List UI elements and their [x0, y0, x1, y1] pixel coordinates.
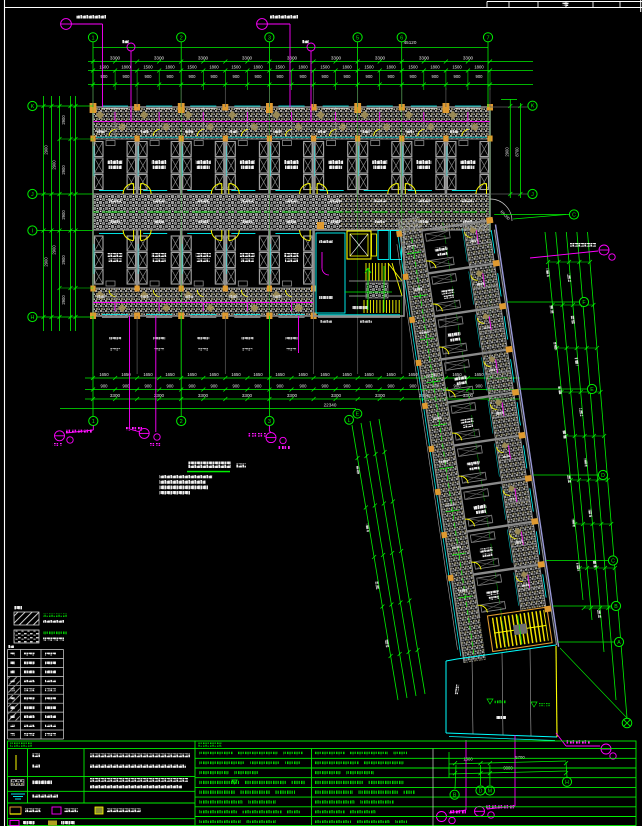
- svg-text:1500: 1500: [187, 65, 197, 70]
- svg-text:900: 900: [145, 74, 153, 79]
- svg-text:C: C: [572, 213, 576, 219]
- svg-text:1650: 1650: [320, 372, 330, 377]
- svg-text:8700: 8700: [515, 147, 520, 157]
- svg-text:2900: 2900: [61, 255, 66, 265]
- svg-text:900: 900: [277, 74, 285, 79]
- svg-text:1800: 1800: [298, 65, 308, 70]
- svg-text:1650: 1650: [298, 372, 308, 377]
- svg-text:900: 900: [410, 384, 418, 389]
- svg-text:900: 900: [366, 384, 374, 389]
- svg-text:2: 2: [180, 35, 183, 41]
- svg-text:D: D: [601, 473, 605, 479]
- svg-text:900: 900: [476, 384, 484, 389]
- svg-text:1800: 1800: [430, 65, 440, 70]
- svg-text:900: 900: [101, 384, 109, 389]
- svg-text:1800: 1800: [474, 65, 484, 70]
- svg-text:3300: 3300: [242, 393, 253, 398]
- svg-text:2900: 2900: [52, 160, 57, 170]
- svg-text:900: 900: [167, 74, 175, 79]
- svg-text:1650: 1650: [165, 372, 175, 377]
- svg-text:900: 900: [300, 74, 308, 79]
- svg-text:900: 900: [145, 384, 153, 389]
- svg-text:1500: 1500: [463, 757, 473, 762]
- svg-text:5: 5: [356, 35, 359, 41]
- svg-text:1500: 1500: [231, 65, 241, 70]
- svg-text:900: 900: [255, 384, 263, 389]
- svg-text:900: 900: [410, 74, 418, 79]
- svg-text:1650: 1650: [143, 372, 153, 377]
- svg-text:1650: 1650: [231, 372, 241, 377]
- svg-text:K: K: [531, 104, 535, 110]
- svg-text:900: 900: [322, 74, 330, 79]
- svg-text:1650: 1650: [99, 372, 109, 377]
- svg-text:H: H: [565, 780, 569, 786]
- svg-text:3300: 3300: [198, 393, 209, 398]
- svg-text:I: I: [32, 229, 34, 235]
- svg-text:900: 900: [123, 384, 131, 389]
- svg-text:5700: 5700: [515, 755, 525, 760]
- svg-text:H: H: [30, 315, 34, 321]
- svg-text:2900: 2900: [52, 245, 57, 255]
- svg-text:3300: 3300: [375, 56, 386, 61]
- svg-text:A: A: [617, 640, 621, 646]
- svg-text:900: 900: [211, 74, 219, 79]
- svg-text:D: D: [479, 789, 483, 795]
- svg-text:B: B: [614, 604, 618, 610]
- svg-text:1650: 1650: [474, 372, 484, 377]
- svg-text:900: 900: [322, 384, 330, 389]
- svg-text:F: F: [582, 300, 585, 306]
- svg-text:1650: 1650: [386, 372, 396, 377]
- svg-text:3300: 3300: [331, 393, 342, 398]
- svg-text:900: 900: [189, 74, 197, 79]
- svg-text:1: 1: [92, 419, 95, 425]
- svg-text:7: 7: [486, 35, 489, 41]
- svg-text:1800: 1800: [209, 65, 219, 70]
- svg-text:E: E: [590, 387, 594, 393]
- svg-text:M: M: [488, 789, 492, 795]
- svg-text:3300: 3300: [463, 56, 474, 61]
- svg-text:2900: 2900: [61, 295, 66, 305]
- svg-text:J: J: [31, 192, 34, 198]
- svg-text:1800: 1800: [253, 65, 263, 70]
- svg-text:1650: 1650: [342, 372, 352, 377]
- svg-text:6: 6: [400, 35, 403, 41]
- svg-text:1650: 1650: [253, 372, 263, 377]
- svg-text:3300: 3300: [375, 393, 386, 398]
- svg-text:E: E: [356, 412, 360, 418]
- svg-text:45120: 45120: [404, 40, 417, 45]
- svg-text:K: K: [31, 104, 35, 110]
- svg-text:900: 900: [432, 74, 440, 79]
- svg-text:1500: 1500: [320, 65, 330, 70]
- svg-text:900: 900: [476, 74, 484, 79]
- svg-text:3: 3: [268, 419, 271, 425]
- svg-text:3300: 3300: [287, 56, 298, 61]
- svg-text:900: 900: [255, 74, 263, 79]
- svg-text:3300: 3300: [110, 56, 121, 61]
- svg-text:1500: 1500: [99, 65, 109, 70]
- svg-text:3300: 3300: [154, 56, 165, 61]
- svg-text:3300: 3300: [198, 56, 209, 61]
- svg-text:1800: 1800: [386, 65, 396, 70]
- svg-text:900: 900: [233, 74, 241, 79]
- svg-text:900: 900: [123, 74, 131, 79]
- svg-text:900: 900: [344, 384, 352, 389]
- svg-text:900: 900: [388, 74, 396, 79]
- svg-text:J: J: [531, 192, 534, 198]
- svg-text:1: 1: [91, 35, 94, 41]
- svg-text:3300: 3300: [242, 56, 253, 61]
- svg-text:900: 900: [277, 384, 285, 389]
- svg-text:1650: 1650: [275, 372, 285, 377]
- svg-text:900: 900: [167, 384, 175, 389]
- svg-text:900: 900: [344, 74, 352, 79]
- svg-text:1500: 1500: [408, 65, 418, 70]
- svg-text:C: C: [611, 559, 615, 565]
- svg-text:1650: 1650: [209, 372, 219, 377]
- svg-text:900: 900: [300, 384, 308, 389]
- svg-text:900: 900: [366, 74, 374, 79]
- svg-text:900: 900: [454, 74, 462, 79]
- svg-text:1650: 1650: [187, 372, 197, 377]
- svg-text:2900: 2900: [61, 115, 66, 125]
- svg-text:900: 900: [211, 384, 219, 389]
- svg-text:1500: 1500: [364, 65, 374, 70]
- svg-text:900: 900: [101, 74, 109, 79]
- svg-text:900: 900: [233, 384, 241, 389]
- svg-text:B: B: [453, 793, 457, 799]
- svg-text:1500: 1500: [275, 65, 285, 70]
- svg-text:1650: 1650: [364, 372, 374, 377]
- svg-text:2: 2: [180, 419, 183, 425]
- svg-text:1500: 1500: [143, 65, 153, 70]
- svg-text:2900: 2900: [61, 165, 66, 175]
- svg-text:2900: 2900: [61, 210, 66, 220]
- svg-text:3: 3: [268, 35, 271, 41]
- svg-text:2900: 2900: [44, 145, 49, 155]
- svg-text:1800: 1800: [165, 65, 175, 70]
- svg-text:3300: 3300: [110, 393, 121, 398]
- svg-text:3300: 3300: [331, 56, 342, 61]
- svg-text:2900: 2900: [44, 257, 49, 267]
- svg-text:3300: 3300: [287, 393, 298, 398]
- svg-text:1500: 1500: [452, 65, 462, 70]
- svg-text:900: 900: [189, 384, 197, 389]
- svg-text:1800: 1800: [121, 65, 131, 70]
- svg-text:2900: 2900: [505, 147, 510, 157]
- svg-text:3300: 3300: [419, 56, 430, 61]
- svg-text:1800: 1800: [342, 65, 352, 70]
- svg-text:22340: 22340: [324, 403, 337, 408]
- svg-text:900: 900: [388, 384, 396, 389]
- svg-text:L: L: [348, 418, 351, 424]
